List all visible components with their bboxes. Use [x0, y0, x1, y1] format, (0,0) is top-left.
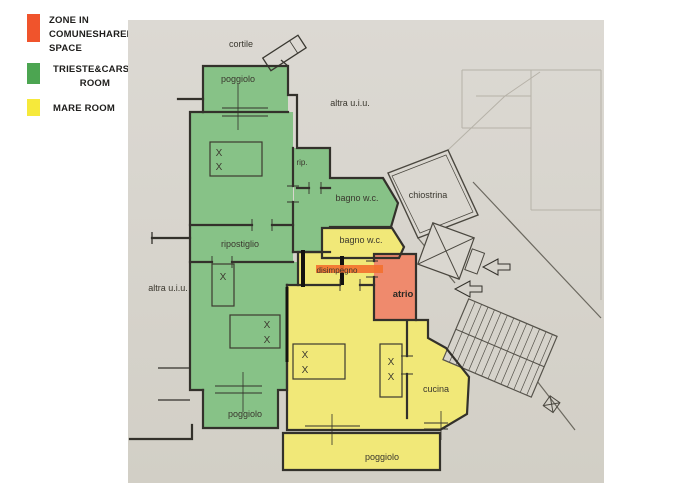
bed-mark: X [216, 162, 223, 173]
room-poggiolo-bottom-center [283, 433, 440, 470]
floor-plan-image: X X X X X X X X X cortile poggiolo altra… [0, 0, 700, 500]
label-poggiolo-top: poggiolo [221, 74, 255, 84]
label-altra-uiu-left: altra u.i.u. [148, 283, 188, 293]
bed-mark: X [302, 350, 309, 361]
label-disimpegno: disimpegno [317, 266, 358, 275]
bed-mark: X [302, 365, 309, 376]
label-rip: rip. [296, 158, 307, 167]
label-altra-uiu-top: altra u.i.u. [330, 98, 370, 108]
bed-mark: X [264, 320, 271, 331]
bed-mark: X [388, 357, 395, 368]
label-chiostrina: chiostrina [409, 190, 448, 200]
label-cucina: cucina [423, 384, 449, 394]
bed-mark: X [220, 272, 227, 283]
room-poggiolo-top [203, 66, 288, 112]
label-bagno-yellow: bagno w.c. [339, 235, 382, 245]
room-atrio-shared [374, 254, 416, 320]
label-cortile: cortile [229, 39, 253, 49]
bed-mark: X [264, 335, 271, 346]
label-ripostiglio: ripostiglio [221, 239, 259, 249]
bed-mark: X [216, 148, 223, 159]
label-poggiolo-bottom-left: poggiolo [228, 409, 262, 419]
floor-plan-page: ZONE IN COMUNESHARED SPACE TRIESTE&CARSO… [0, 0, 700, 500]
label-poggiolo-bottom-center: poggiolo [365, 452, 399, 462]
label-atrio: atrio [393, 289, 414, 300]
label-bagno-green: bagno w.c. [335, 193, 378, 203]
room-bedroom-green-2 [190, 262, 287, 390]
room-bedroom-green-1 [190, 112, 293, 225]
bed-mark: X [388, 372, 395, 383]
